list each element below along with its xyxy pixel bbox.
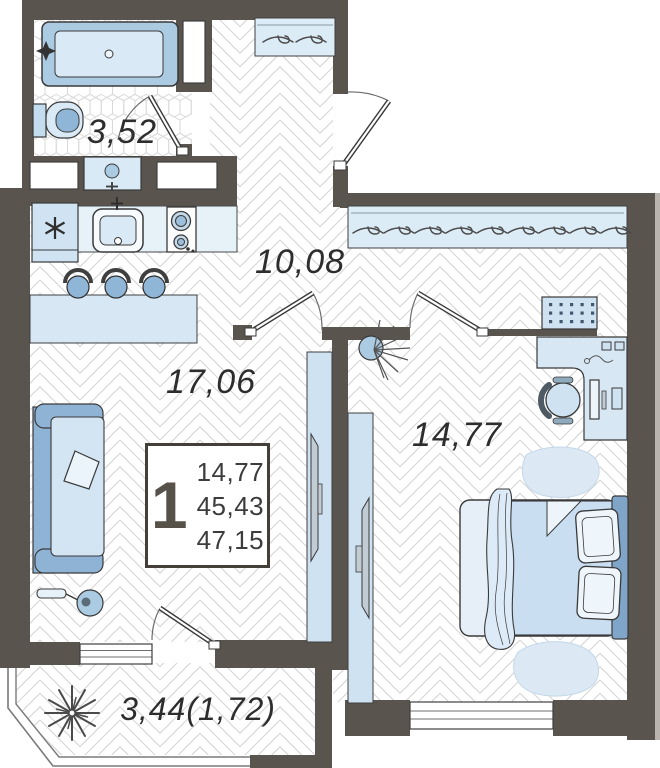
fridge (32, 203, 78, 262)
speaker-icon (615, 342, 624, 350)
rug (522, 447, 599, 497)
rug (514, 642, 599, 696)
pillow (575, 509, 621, 564)
total-area-value: 47,15 (197, 523, 265, 557)
washbasin (84, 157, 141, 191)
stove (167, 207, 196, 253)
entry-closet (255, 18, 335, 56)
tv-icon (311, 434, 318, 561)
area-values: 14,77 45,43 47,15 (197, 455, 265, 557)
duct-shaft (183, 21, 205, 83)
wardrobe (348, 206, 631, 248)
room-label-bedroom: 14,77 (412, 418, 502, 452)
exterior-shadow (655, 193, 660, 740)
room-label-hallway: 10,08 (255, 245, 345, 279)
bathroom-cabinet (30, 162, 78, 189)
apartment-info-box: 1 14,77 45,43 47,15 (145, 443, 270, 568)
bathtub (36, 22, 178, 86)
washer-niche (157, 162, 217, 189)
pc-tower (612, 388, 622, 409)
tv-unit-bedroom (348, 413, 373, 703)
dresser (542, 297, 597, 329)
floor-plan: 3,52 10,08 17,06 14,77 3,44(1,72) 1 14,7… (0, 0, 660, 768)
rooms-count: 1 (151, 476, 188, 535)
tv-unit-living (307, 352, 332, 642)
bedroom-window (410, 702, 553, 729)
room-label-bathroom: 3,52 (87, 115, 157, 149)
kitchen-island (30, 295, 197, 343)
sofa (33, 404, 104, 573)
living-room-window (80, 644, 152, 664)
monitor-icon (590, 380, 599, 419)
area-value: 45,43 (197, 489, 265, 523)
living-area-value: 14,77 (197, 455, 265, 489)
bed (460, 489, 628, 649)
tv-icon (362, 498, 369, 618)
pillow (577, 566, 622, 620)
duvet-drape (485, 489, 515, 649)
toilet (33, 102, 83, 138)
room-label-living-room: 17,06 (166, 365, 256, 399)
speaker-icon (602, 342, 611, 350)
room-label-balcony: 3,44(1,72) (120, 693, 276, 725)
